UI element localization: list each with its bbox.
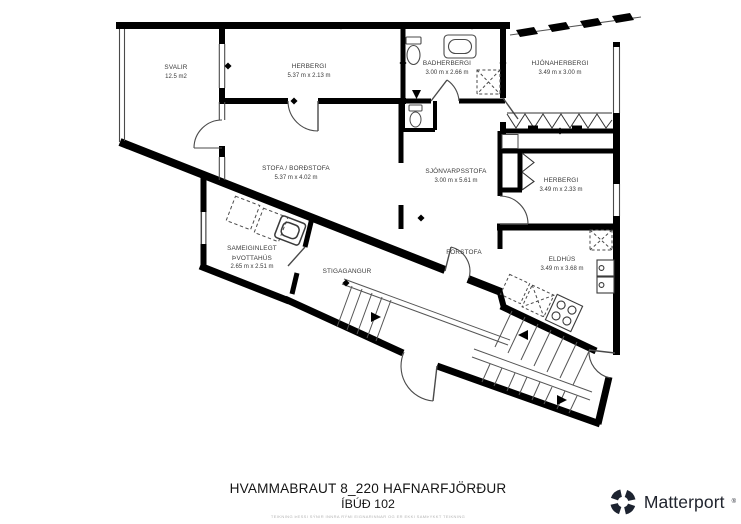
fridge-icon [597, 260, 614, 293]
room-name: BADHERBERGI [423, 59, 471, 69]
room-name-line2: ÞVOTTAHÚS [227, 254, 277, 264]
room-label-hjonaherbergi: HJÓNAHERBERGI 3.49 m x 3.00 m [532, 59, 589, 78]
room-dims: 3.00 m x 2.66 m [423, 69, 471, 78]
toilet-icon [406, 37, 421, 65]
room-dims: 3.00 m x 5.61 m [425, 177, 486, 186]
floor-plan-page: SVALIR 12.5 m2 HERBERGI 5.37 m x 2.13 m … [0, 0, 741, 524]
room-name: STIGAGANGUR [323, 267, 372, 277]
bathtub-icon [444, 35, 476, 58]
room-name: SVALIR [164, 63, 187, 73]
matterport-logo: Matterport® [608, 487, 736, 517]
room-name: FORSTOFA [446, 248, 482, 258]
stair-direction-arrow [557, 395, 567, 405]
room-dims: 3.49 m x 3.68 m [540, 265, 583, 274]
room-label-stofa-bordstofa: STOFA / BORÐSTOFA 5.37 m x 4.02 m [262, 164, 330, 183]
room-label-badherbergi: BADHERBERGI 3.00 m x 2.66 m [423, 59, 471, 78]
room-label-herbergi-top: HERBERGI 5.37 m x 2.13 m [287, 62, 330, 81]
duct-box [502, 135, 518, 149]
room-dims: 5.37 m x 4.02 m [262, 174, 330, 183]
stair-direction-arrow [518, 330, 528, 340]
room-dims: 5.37 m x 2.13 m [287, 72, 330, 81]
room-label-thvottahus: SAMEIGINLEGT ÞVOTTAHÚS 2.65 m x 2.51 m [227, 244, 277, 272]
floor-plan-drawing [0, 0, 741, 524]
room-name: HERBERGI [539, 176, 582, 186]
address-title: HVAMMABRAUT 8_220 HAFNARFJÖRÐUR [230, 481, 507, 496]
room-dims: 3.49 m x 2.33 m [539, 186, 582, 195]
wc-toilet-icon [409, 90, 422, 127]
shower-icon [477, 70, 500, 94]
room-name: HJÓNAHERBERGI [532, 59, 589, 69]
room-label-eldhus: ELDHÚS 3.49 m x 3.68 m [540, 255, 583, 274]
room-name: ELDHÚS [540, 255, 583, 265]
room-dims: 2.65 m x 2.51 m [227, 263, 277, 272]
registered-mark: ® [732, 499, 736, 505]
matterport-logo-icon [608, 487, 638, 517]
dishwasher-icon [590, 230, 612, 250]
room-name: HERBERGI [287, 62, 330, 72]
matterport-logo-text: Matterport [644, 492, 725, 513]
room-name: SJÓNVARPSSTOFA [425, 167, 486, 177]
room-name: STOFA / BORÐSTOFA [262, 164, 330, 174]
room-label-svalir: SVALIR 12.5 m2 [164, 63, 187, 82]
room-label-sjonvarpsstofa: SJÓNVARPSSTOFA 3.00 m x 5.61 m [425, 167, 486, 186]
laundry-sink-icon [274, 215, 307, 246]
room-dims: 12.5 m2 [164, 73, 187, 82]
balcony-railing [120, 29, 125, 142]
unit-title: ÍBÚÐ 102 [341, 497, 395, 511]
room-name: SAMEIGINLEGT [227, 244, 277, 254]
room-label-stigagangur: STIGAGANGUR [323, 267, 372, 277]
door-swing-arrow [412, 90, 421, 99]
closet-bifold-icon [522, 153, 534, 190]
angled-window-wall [510, 13, 641, 37]
room-dims: 3.49 m x 3.00 m [532, 69, 589, 78]
disclaimer-text: TEIKNING ÞESSI SÝNIR INNRA RÝMI EIGNARIN… [271, 514, 465, 519]
room-label-forstofa: FORSTOFA [446, 248, 482, 258]
room-label-herbergi-right: HERBERGI 3.49 m x 2.33 m [539, 176, 582, 195]
